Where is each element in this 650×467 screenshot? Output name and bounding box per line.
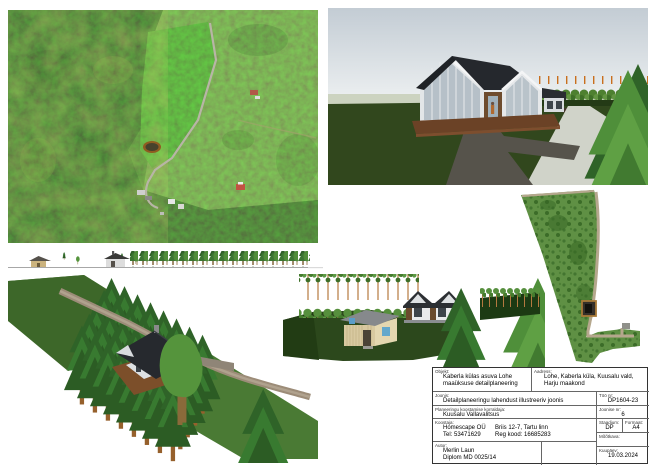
aerial-autumn-texture [8, 10, 168, 243]
plan-building-footprint [582, 301, 596, 316]
scale-label: Mõõtkava: [597, 433, 649, 439]
aerial-pond [143, 141, 161, 153]
author-diploma: Diplom MD 0025/14 [433, 455, 541, 462]
stage-value: DP [597, 425, 622, 432]
cell-composer: Koostaja: Homescape OÜ Briis 12-7, Tartu… [433, 418, 596, 441]
cell-format: Formaat: A4 [622, 418, 649, 432]
cell-date: Kuupäev: 19.03.2024 [596, 446, 649, 465]
background-tree-row [299, 274, 419, 318]
title-block: Objekt: Kaberla külas asuva Lohe maaüksu… [432, 367, 648, 464]
render-site-isometric [8, 275, 320, 463]
composer-line2: Tel: 53471629 Reg kood: 16685283 [433, 432, 596, 439]
render-main-view [328, 8, 648, 185]
drawing-value: Detailplaneeringu lahendust illustreeriv… [433, 398, 596, 405]
elevation-strip [8, 248, 323, 270]
object-value: Kaberla külas asuva Lohe maaüksuse detai… [433, 374, 531, 387]
aerial-photo [8, 10, 318, 243]
render-sauna-view [283, 262, 545, 377]
cell-scale: Mõõtkava: [596, 432, 649, 446]
elev-house-2 [104, 251, 130, 267]
cell-address: Aadress: Lohe, Kaberla küla, Kuusalu val… [531, 368, 649, 391]
site-plan-top-view [518, 183, 643, 365]
cell-author: Autor: Merlin Laun Diplom MD 0025/14 [433, 441, 541, 465]
format-value: A4 [623, 425, 649, 432]
cell-work-no: Töö nr: DP1604-23 [596, 391, 649, 405]
date-value: 19.03.2024 [597, 453, 649, 460]
cell-drawing: Joonis: Detailplaneeringu lahendust illu… [433, 391, 596, 405]
person-figure [491, 105, 494, 114]
cell-empty [541, 441, 596, 465]
cell-sheet-no: Joonise nr: 6 [596, 405, 649, 418]
elev-decid [76, 256, 80, 264]
address-value: Lohe, Kaberla küla, Kuusalu vald, Harju … [532, 374, 649, 387]
plan-outbuilding [622, 323, 630, 329]
cell-organizer: Planeeringu koostamise korraldaja: Kuusa… [433, 405, 596, 418]
cell-object: Objekt: Kaberla külas asuva Lohe maaüksu… [433, 368, 531, 391]
plan-sheet: Objekt: Kaberla külas asuva Lohe maaüksu… [0, 0, 650, 467]
composer-phone: Tel: 53471629 [443, 432, 495, 439]
sauna-ground-dark [283, 312, 319, 360]
composer-reg-code: Reg kood: 16685283 [495, 432, 551, 439]
cell-stage: Staadium: DP [596, 418, 622, 432]
work-no-value: DP1604-23 [597, 398, 649, 405]
elev-house-1 [29, 256, 51, 267]
elev-spruce [62, 252, 65, 260]
